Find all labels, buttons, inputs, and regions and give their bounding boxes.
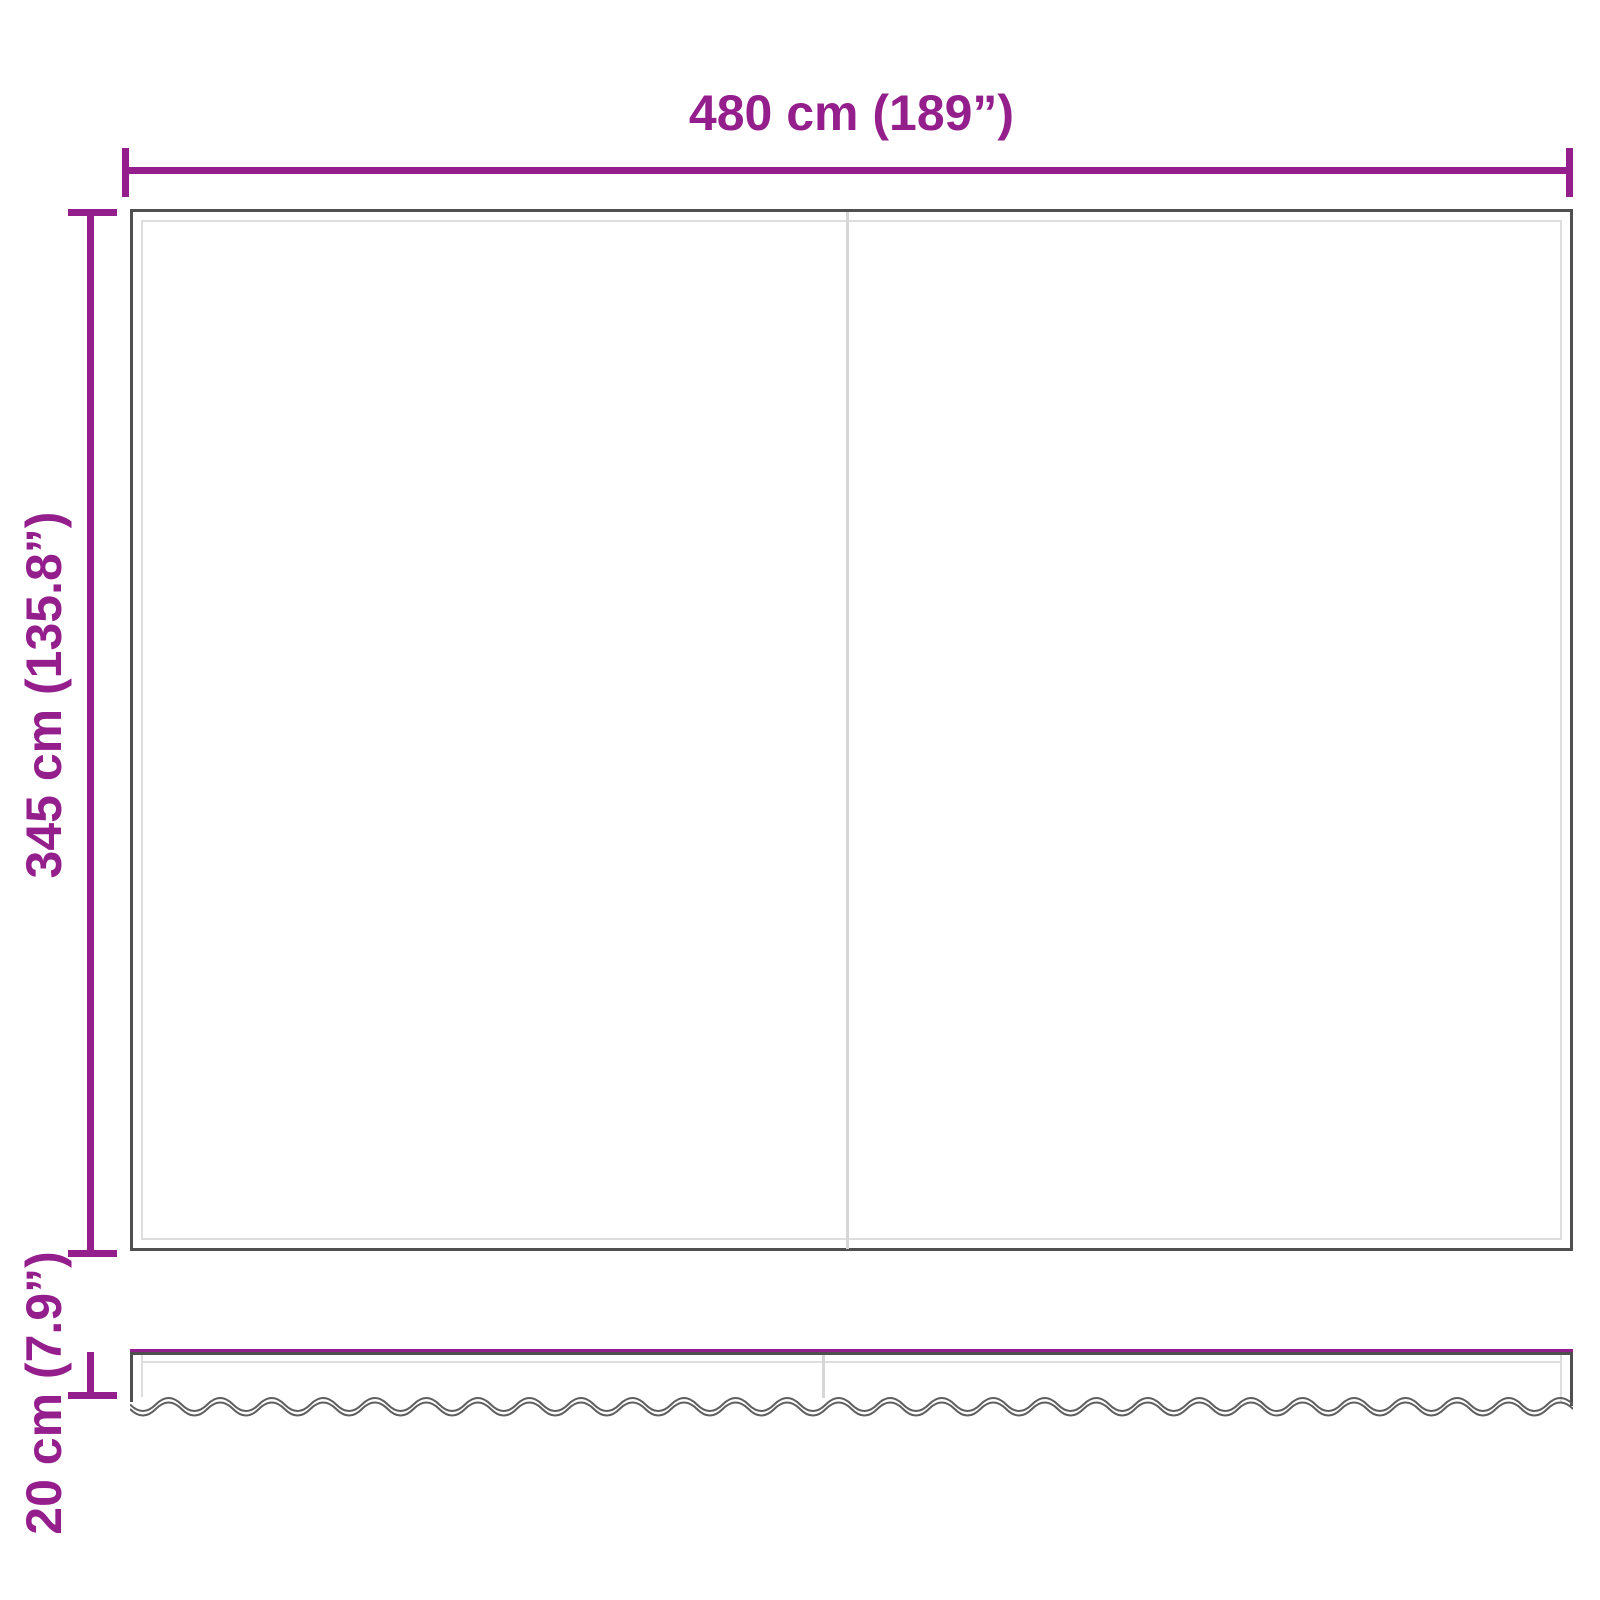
height-dimension-line <box>87 209 94 1257</box>
fabric-inner-seam <box>141 220 1562 1240</box>
valance-scalloped-edge <box>130 1388 1573 1432</box>
width-dimension-tick-left <box>122 148 129 197</box>
valance-dimension-label: 20 cm (7.9”) <box>19 1251 69 1534</box>
awning-fabric-panel <box>130 209 1573 1251</box>
fabric-center-seam <box>846 212 849 1249</box>
dimension-diagram-canvas: 480 cm (189”) 345 cm (135.8”) 20 cm (7.9… <box>0 0 1600 1600</box>
height-dimension-tick-bottom <box>68 1250 117 1257</box>
valance-top-edge <box>130 1352 1573 1355</box>
height-dimension-tick-top <box>68 209 117 216</box>
valance-inner-seam <box>141 1361 1562 1363</box>
width-dimension-line <box>122 167 1573 174</box>
width-dimension-label: 480 cm (189”) <box>130 88 1573 138</box>
height-dimension-label: 345 cm (135.8”) <box>19 512 69 879</box>
valance-dimension-tick-bottom <box>68 1392 117 1399</box>
width-dimension-tick-right <box>1566 148 1573 197</box>
